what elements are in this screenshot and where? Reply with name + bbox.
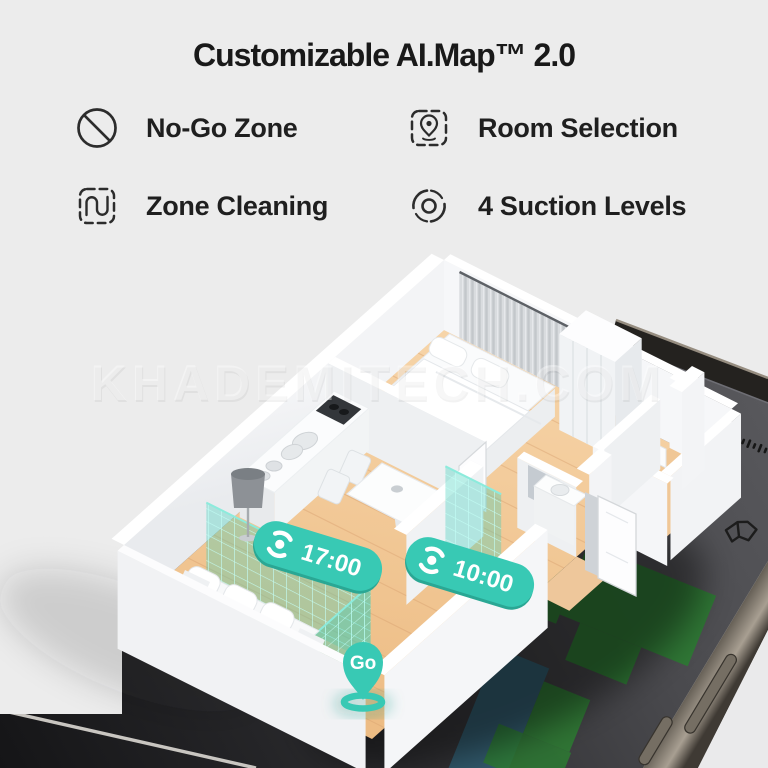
feature-label: Room Selection: [478, 113, 678, 144]
watermark: KHADEMITECH.COM KHADEMITECH.COM: [91, 355, 667, 413]
feature-zone-cleaning: Zone Cleaning: [74, 178, 406, 234]
feature-no-go-zone: No-Go Zone: [74, 100, 406, 156]
feature-label: Zone Cleaning: [146, 191, 328, 222]
suction-levels-icon: [406, 183, 452, 229]
feature-suction-levels: 4 Suction Levels: [406, 178, 734, 234]
product-infographic: KHADEMITECH.COM KHADEMITECH.COM 17:00: [0, 0, 768, 768]
zone-cleaning-icon: [74, 183, 120, 229]
feature-room-selection: Room Selection: [406, 100, 734, 156]
no-go-icon: [74, 105, 120, 151]
page-title: Customizable AI.Map™ 2.0: [0, 37, 768, 74]
svg-text:Go: Go: [350, 653, 376, 674]
table-vase: [391, 485, 403, 492]
svg-text:KHADEMITECH.COM: KHADEMITECH.COM: [91, 355, 666, 411]
feature-label: No-Go Zone: [146, 113, 297, 144]
feature-list: No-Go Zone Room Selection Zone Clean: [74, 100, 734, 234]
feature-label: 4 Suction Levels: [478, 191, 686, 222]
room-selection-icon: [406, 105, 452, 151]
